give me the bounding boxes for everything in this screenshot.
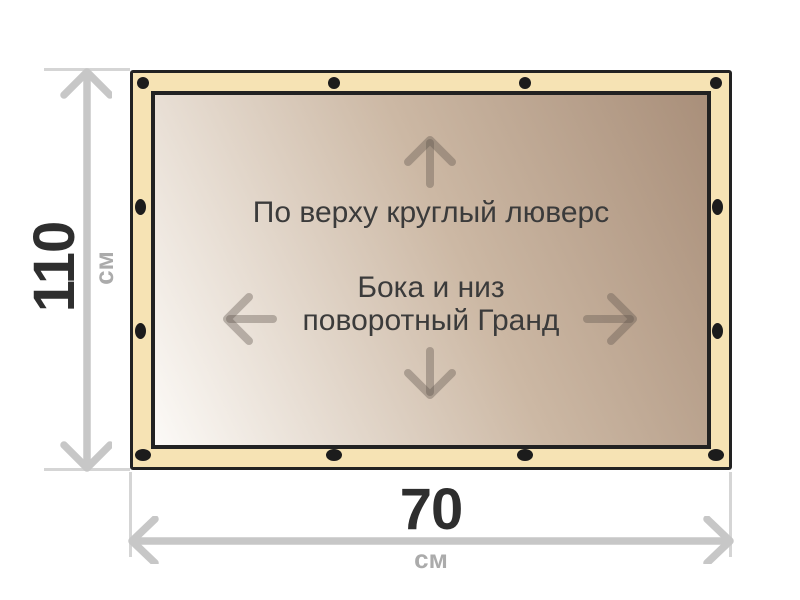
- grommet-dot: [135, 449, 151, 461]
- right-arrow-icon: [583, 291, 639, 347]
- grommet-dot: [135, 199, 146, 215]
- up-arrow-icon: [400, 134, 460, 190]
- width-unit-label: см: [130, 546, 732, 572]
- height-value-label: 110: [26, 167, 84, 367]
- height-unit-label: см: [91, 228, 117, 308]
- grommet-dot: [712, 323, 723, 339]
- grommet-dot: [710, 77, 722, 89]
- grommet-dot: [135, 323, 146, 339]
- grommet-dot: [519, 77, 531, 89]
- banner-canvas: По верху круглый люверс Бока и низ повор…: [151, 91, 711, 449]
- left-arrow-icon: [221, 291, 277, 347]
- grommet-dot: [328, 77, 340, 89]
- down-arrow-icon: [400, 345, 460, 401]
- top-edge-note: По верху круглый люверс: [155, 195, 707, 231]
- grommet-dot: [137, 77, 149, 89]
- banner-frame: По верху круглый люверс Бока и низ повор…: [130, 70, 732, 470]
- width-value-label: 70: [130, 481, 732, 539]
- grommet-dot: [326, 449, 342, 461]
- dimension-diagram: 110 см 70 см По верху круглый люверс Бок…: [0, 0, 800, 600]
- grommet-dot: [712, 199, 723, 215]
- grommet-dot: [517, 449, 533, 461]
- grommet-dot: [708, 449, 724, 461]
